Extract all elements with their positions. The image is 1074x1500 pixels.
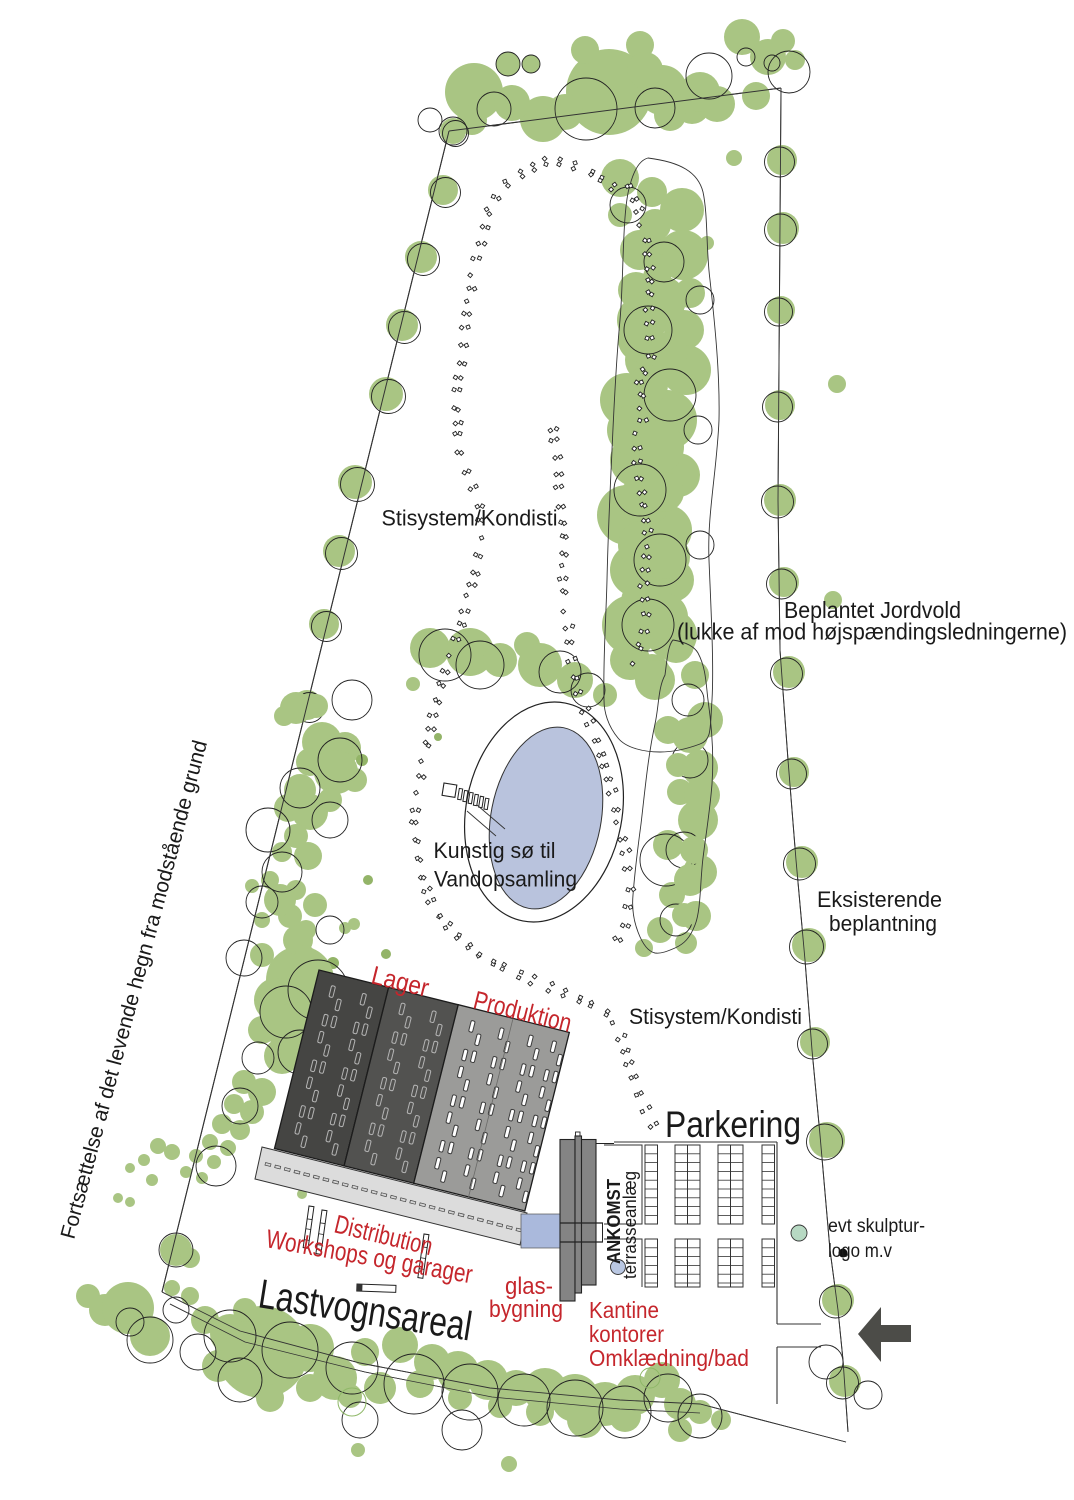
svg-text:Kunstig sø til: Kunstig sø til: [434, 838, 556, 863]
svg-text:Omklædning/bad: Omklædning/bad: [589, 1345, 749, 1371]
svg-text:Stisystem/Kondisti: Stisystem/Kondisti: [629, 1004, 802, 1029]
svg-text:(lukke af mod højspændingsledn: (lukke af mod højspændingsledningerne): [677, 619, 1067, 645]
svg-text:bygning: bygning: [489, 1296, 563, 1323]
svg-text:logo m.v: logo m.v: [828, 1240, 892, 1262]
svg-text:Stisystem/Kondisti: Stisystem/Kondisti: [382, 506, 558, 531]
svg-text:evt skulptur-: evt skulptur-: [828, 1215, 925, 1237]
svg-text:Vandopsamling: Vandopsamling: [434, 867, 577, 892]
svg-text:beplantning: beplantning: [829, 911, 937, 936]
svg-text:kontorer: kontorer: [589, 1321, 664, 1347]
svg-text:Eksisterende: Eksisterende: [817, 887, 942, 912]
svg-text:Kantine: Kantine: [589, 1297, 659, 1323]
svg-text:Parkering: Parkering: [665, 1104, 801, 1145]
svg-text:terrasseanlæg: terrasseanlæg: [620, 1171, 640, 1279]
